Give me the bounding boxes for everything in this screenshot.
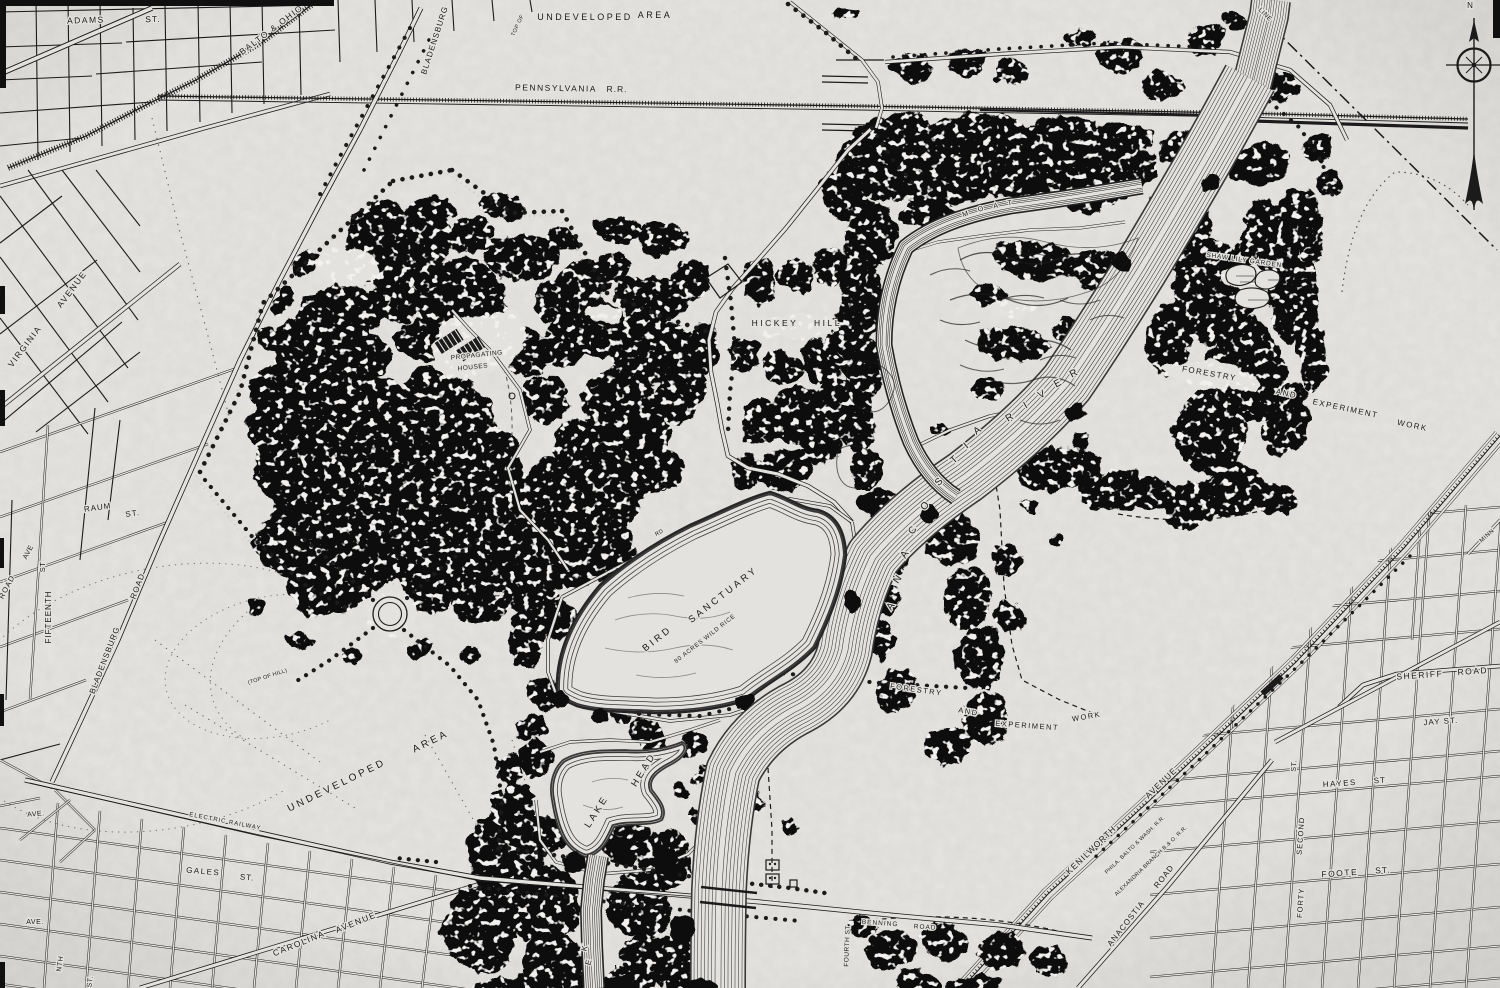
svg-text:AREA: AREA [638, 10, 673, 20]
svg-text:ADAMS: ADAMS [67, 14, 105, 25]
svg-text:ST: ST [38, 562, 47, 573]
svg-text:ST.: ST. [1291, 760, 1299, 772]
svg-text:UNDEVELOPED: UNDEVELOPED [537, 12, 633, 22]
svg-text:ST.: ST. [240, 872, 255, 882]
svg-text:AVE.: AVE. [26, 919, 43, 926]
svg-text:ROAD: ROAD [1457, 665, 1488, 677]
svg-text:ST.: ST. [1375, 864, 1391, 875]
svg-text:FOURTH ST: FOURTH ST [843, 925, 851, 967]
svg-text:R.R.: R.R. [606, 84, 627, 94]
svg-text:ST.: ST. [145, 14, 161, 25]
svg-text:HICKEY: HICKEY [752, 318, 799, 328]
svg-text:N: N [1467, 1, 1473, 10]
svg-text:ST: ST [1373, 776, 1386, 786]
svg-text:HILL: HILL [814, 318, 842, 328]
svg-text:PENNSYLVANIA: PENNSYLVANIA [515, 82, 597, 93]
svg-text:FIFTEENTH: FIFTEENTH [44, 591, 53, 644]
